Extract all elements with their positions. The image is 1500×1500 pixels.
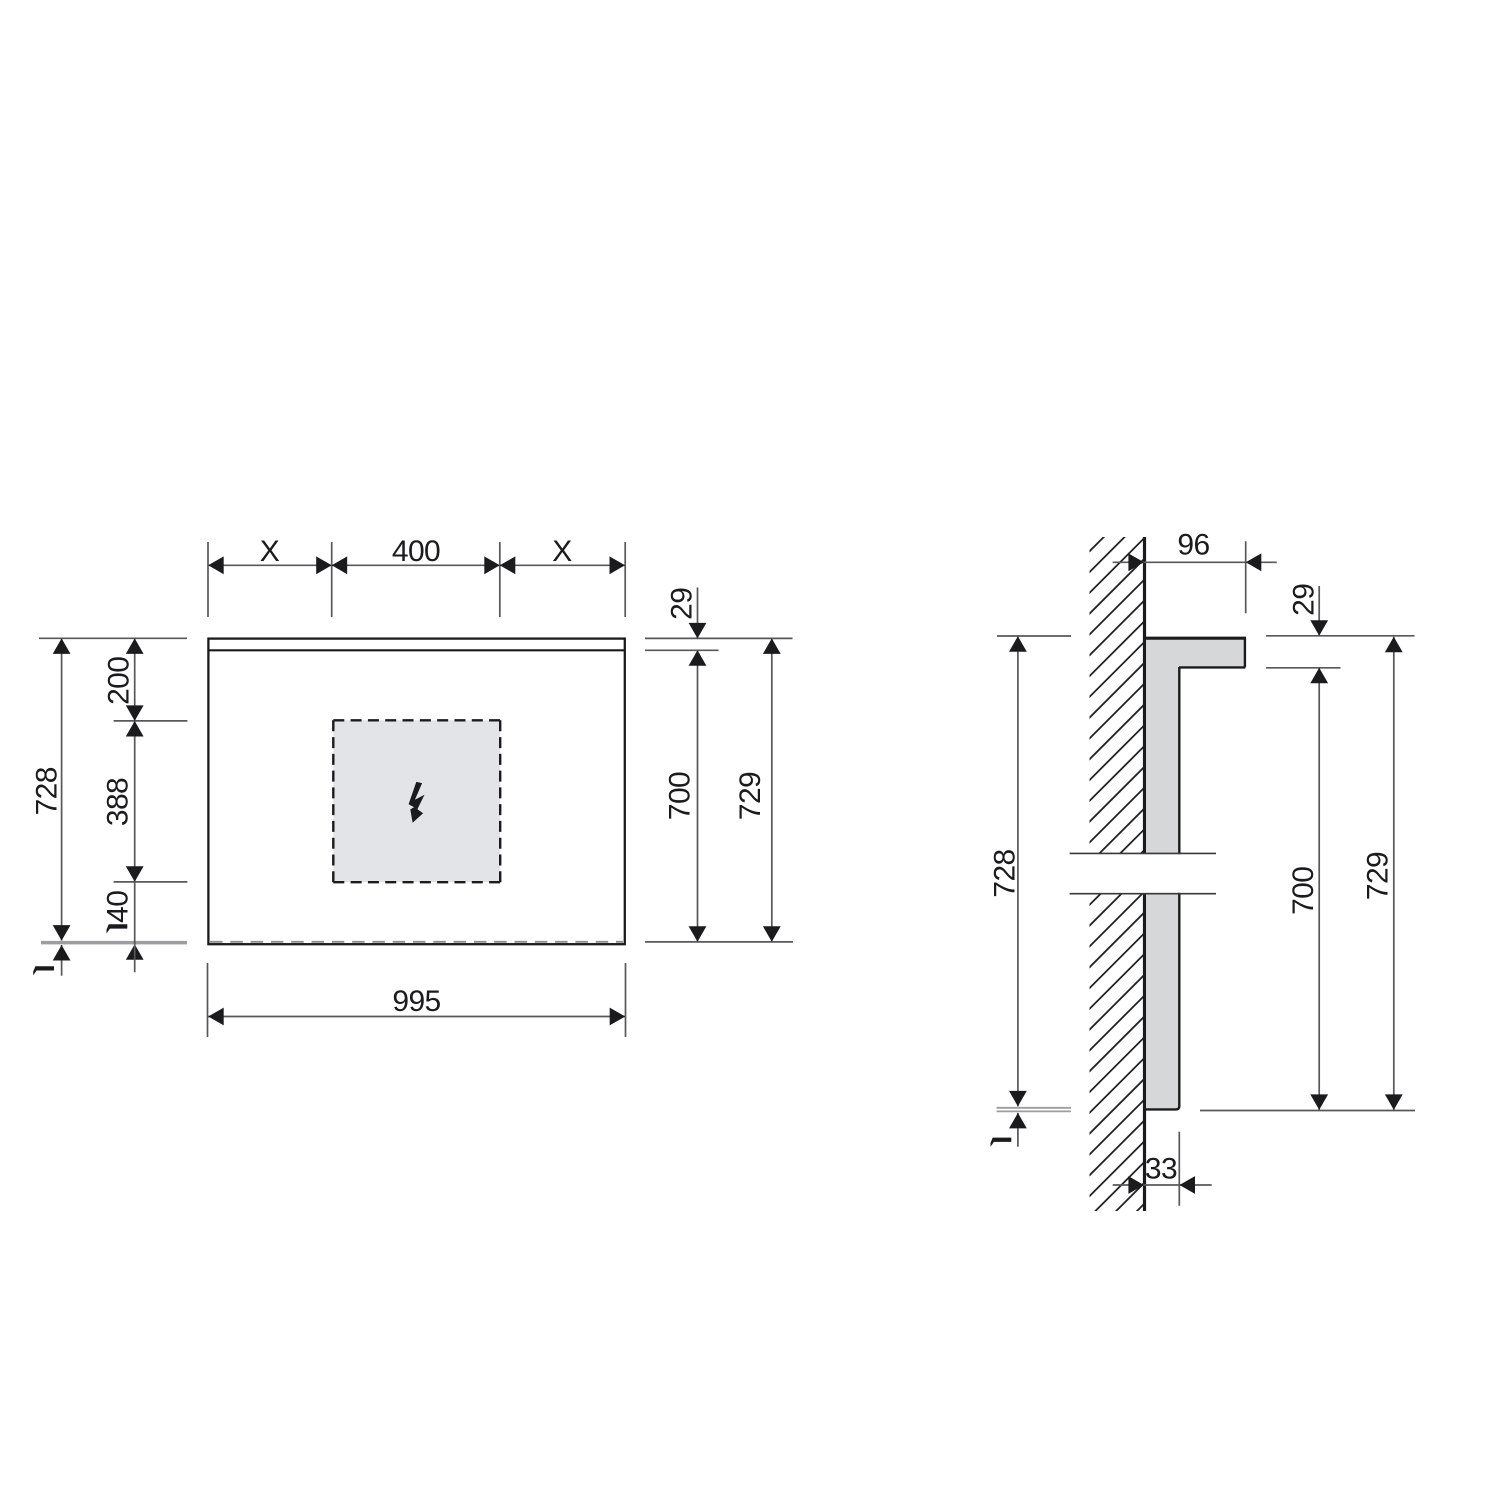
svg-text:29: 29	[1288, 584, 1321, 616]
svg-text:29: 29	[666, 588, 699, 620]
svg-text:X: X	[260, 535, 280, 568]
svg-text:728: 728	[989, 849, 1022, 897]
svg-text:729: 729	[1362, 852, 1395, 900]
svg-text:X: X	[552, 535, 572, 568]
svg-text:995: 995	[392, 985, 440, 1018]
svg-text:729: 729	[734, 772, 767, 820]
svg-text:96: 96	[1177, 529, 1209, 562]
svg-text:200: 200	[102, 657, 135, 705]
svg-text:388: 388	[102, 778, 135, 826]
svg-text:700: 700	[664, 772, 697, 820]
svg-text:40: 40	[102, 891, 135, 923]
svg-text:33: 33	[1145, 1153, 1177, 1186]
svg-text:728: 728	[31, 767, 64, 815]
svg-text:700: 700	[1287, 867, 1320, 915]
svg-text:400: 400	[392, 535, 440, 568]
